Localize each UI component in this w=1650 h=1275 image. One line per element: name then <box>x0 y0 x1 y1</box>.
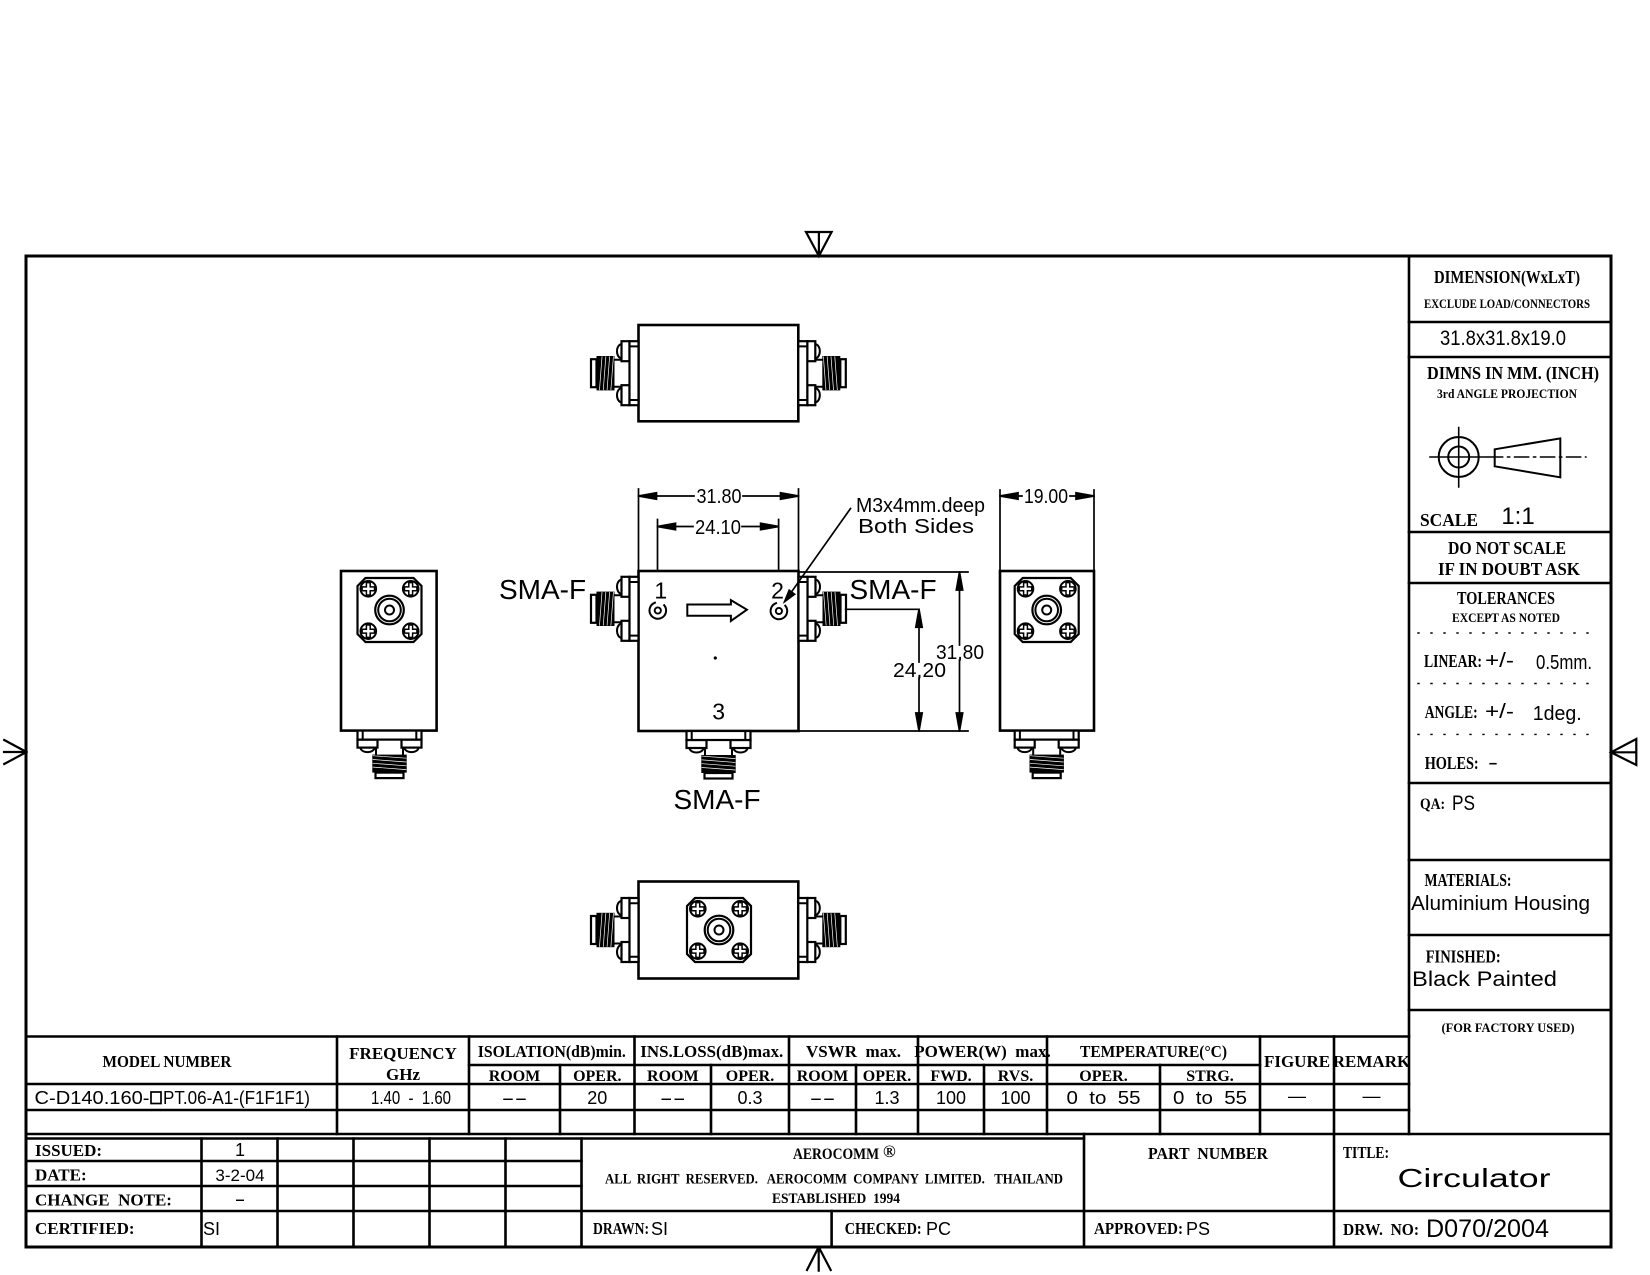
svg-text:20: 20 <box>587 1088 607 1108</box>
svg-text:ISSUED:: ISSUED: <box>35 1141 102 1160</box>
svg-text:0.5mm.: 0.5mm. <box>1536 652 1592 674</box>
svg-text:SI: SI <box>651 1219 668 1239</box>
svg-text:1deg.: 1deg. <box>1533 703 1582 725</box>
svg-text:SMA-F: SMA-F <box>673 784 760 815</box>
svg-text:TOLERANCES: TOLERANCES <box>1457 588 1555 608</box>
svg-text:PART NUMBER: PART NUMBER <box>1148 1144 1269 1163</box>
svg-text:DIMENSION(WxLxT): DIMENSION(WxLxT) <box>1434 267 1580 287</box>
svg-text:STRG.: STRG. <box>1186 1068 1234 1085</box>
svg-text:FIGURE: FIGURE <box>1264 1052 1330 1071</box>
svg-text:CHECKED:: CHECKED: <box>845 1219 922 1238</box>
svg-text:--: -- <box>502 1088 528 1108</box>
svg-text:SCALE: SCALE <box>1420 510 1478 530</box>
svg-text:OPER.: OPER. <box>726 1068 774 1085</box>
svg-text:ROOM: ROOM <box>647 1068 699 1085</box>
svg-text:—: — <box>1363 1086 1381 1106</box>
svg-text:ROOM: ROOM <box>797 1068 849 1085</box>
svg-text:REMARK: REMARK <box>1333 1052 1411 1071</box>
svg-text:FINISHED:: FINISHED: <box>1426 947 1501 967</box>
svg-text:SI: SI <box>203 1219 220 1239</box>
svg-text:1.3: 1.3 <box>874 1088 899 1108</box>
svg-text:TITLE:: TITLE: <box>1343 1143 1389 1162</box>
svg-text:ANGLE:: ANGLE: <box>1425 702 1478 722</box>
svg-text:HOLES:: HOLES: <box>1425 753 1479 773</box>
svg-text:DO NOT SCALE: DO NOT SCALE <box>1448 538 1566 558</box>
svg-text:100: 100 <box>1000 1088 1030 1108</box>
svg-text:3rd ANGLE PROJECTION: 3rd ANGLE PROJECTION <box>1437 386 1578 401</box>
svg-text:DIMNS IN MM. (INCH): DIMNS IN MM. (INCH) <box>1427 363 1599 383</box>
svg-text:19.00: 19.00 <box>1024 486 1068 508</box>
svg-text:--: -- <box>660 1088 686 1108</box>
svg-text:SMA-F: SMA-F <box>849 574 936 605</box>
svg-text:ROOM: ROOM <box>489 1068 541 1085</box>
svg-text:-: - <box>1488 752 1498 774</box>
svg-text:APPROVED:: APPROVED: <box>1094 1219 1183 1238</box>
svg-text:+/-: +/- <box>1485 701 1514 723</box>
svg-text:D070/2004: D070/2004 <box>1426 1215 1549 1243</box>
svg-text:2: 2 <box>771 578 784 604</box>
svg-text:CHANGE NOTE:: CHANGE NOTE: <box>35 1191 172 1210</box>
svg-text:PS: PS <box>1452 792 1475 815</box>
svg-text:0.3: 0.3 <box>737 1088 762 1108</box>
svg-text:1:1: 1:1 <box>1501 503 1534 530</box>
svg-text:IF IN DOUBT ASK: IF IN DOUBT ASK <box>1438 559 1580 579</box>
svg-text:PC: PC <box>926 1219 951 1239</box>
svg-text:FWD.: FWD. <box>930 1068 971 1085</box>
svg-text:DATE:: DATE: <box>35 1166 87 1185</box>
svg-text:PT.06-A1-(F1F1F1): PT.06-A1-(F1F1F1) <box>163 1088 310 1108</box>
svg-text:3-2-04: 3-2-04 <box>215 1166 264 1185</box>
svg-text:INS.LOSS(dB)max.: INS.LOSS(dB)max. <box>640 1042 783 1061</box>
svg-text:DRW. NO:: DRW. NO: <box>1343 1220 1419 1239</box>
svg-text:31,80: 31,80 <box>936 642 984 664</box>
svg-text:1.40 - 1.60: 1.40 - 1.60 <box>371 1088 451 1108</box>
svg-text:GHz: GHz <box>386 1065 420 1084</box>
svg-text:®: ® <box>883 1142 896 1161</box>
svg-text:OPER.: OPER. <box>1079 1068 1127 1085</box>
svg-text:(FOR FACTORY USED): (FOR FACTORY USED) <box>1442 1020 1575 1035</box>
svg-text:LINEAR:: LINEAR: <box>1424 651 1482 671</box>
svg-text:-: - <box>235 1189 246 1209</box>
svg-text:POWER(W) max.: POWER(W) max. <box>914 1042 1050 1061</box>
svg-text:TEMPERATURE(°C): TEMPERATURE(°C) <box>1080 1042 1227 1061</box>
svg-text:+/-: +/- <box>1485 650 1514 672</box>
svg-text:AEROCOMM: AEROCOMM <box>793 1146 879 1163</box>
svg-text:3: 3 <box>712 699 725 725</box>
svg-text:Black Painted: Black Painted <box>1412 968 1557 991</box>
svg-text:MATERIALS:: MATERIALS: <box>1425 870 1512 890</box>
svg-text:ESTABLISHED 1994: ESTABLISHED 1994 <box>772 1191 900 1207</box>
svg-text:1: 1 <box>235 1140 245 1160</box>
svg-text:C-D140.160-: C-D140.160- <box>35 1088 150 1108</box>
svg-text:OPER.: OPER. <box>573 1068 621 1085</box>
svg-text:DRAWN:: DRAWN: <box>593 1219 649 1238</box>
svg-text:ALL RIGHT RESERVED. AEROCO: ALL RIGHT RESERVED. AEROCOMM COMPANY LIM… <box>605 1172 1063 1188</box>
svg-text:FREQUENCY: FREQUENCY <box>349 1044 457 1063</box>
svg-text:EXCLUDE LOAD/CONNECTORS: EXCLUDE LOAD/CONNECTORS <box>1424 297 1590 311</box>
svg-text:0 to 55: 0 to 55 <box>1067 1088 1141 1108</box>
svg-text:SMA-F: SMA-F <box>499 574 586 605</box>
svg-text:ISOLATION(dB)min.: ISOLATION(dB)min. <box>478 1042 626 1061</box>
svg-text:CERTIFIED:: CERTIFIED: <box>35 1219 135 1238</box>
svg-text:—: — <box>1288 1086 1306 1106</box>
svg-text:31.8x31.8x19.0: 31.8x31.8x19.0 <box>1440 327 1566 350</box>
svg-text:QA:: QA: <box>1420 796 1445 813</box>
svg-text:100: 100 <box>936 1088 966 1108</box>
svg-text:M3x4mm.deep: M3x4mm.deep <box>856 495 985 517</box>
svg-text:EXCEPT AS NOTED: EXCEPT AS NOTED <box>1452 610 1560 625</box>
svg-text:--: -- <box>810 1088 836 1108</box>
svg-text:31.80: 31.80 <box>697 486 742 508</box>
svg-text:Both Sides: Both Sides <box>858 516 974 538</box>
svg-text:Circulator: Circulator <box>1398 1163 1551 1193</box>
svg-text:VSWR max.: VSWR max. <box>806 1042 901 1061</box>
svg-text:Aluminium Housing: Aluminium Housing <box>1411 893 1590 915</box>
svg-text:1: 1 <box>654 578 667 604</box>
svg-text:OPER.: OPER. <box>863 1068 911 1085</box>
svg-text:PS: PS <box>1186 1219 1210 1239</box>
svg-text:RVS.: RVS. <box>998 1068 1033 1085</box>
svg-text:24.10: 24.10 <box>695 517 741 539</box>
svg-text:0 to 55: 0 to 55 <box>1173 1088 1247 1108</box>
svg-text:MODEL NUMBER: MODEL NUMBER <box>103 1052 233 1071</box>
